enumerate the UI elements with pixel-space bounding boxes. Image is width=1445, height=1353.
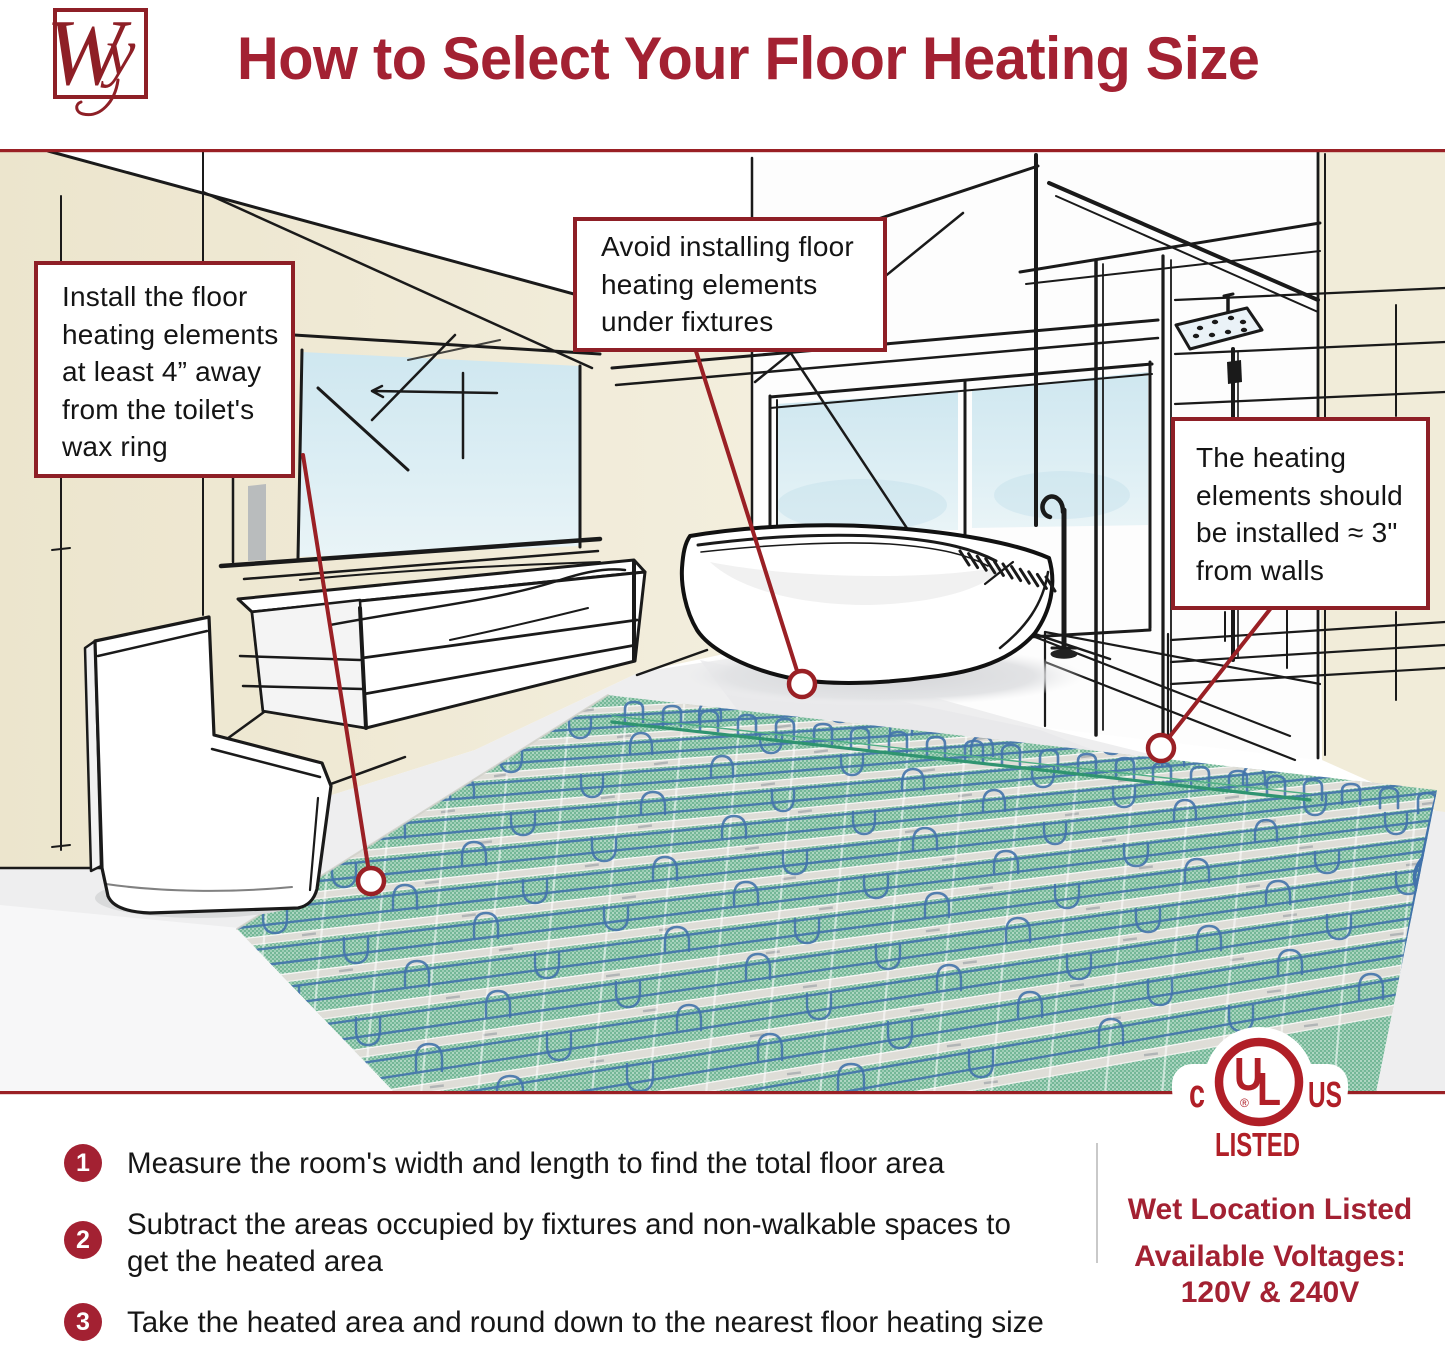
svg-text:c: c	[1189, 1072, 1205, 1116]
svg-text:LISTED: LISTED	[1215, 1126, 1300, 1163]
svg-text:US: US	[1308, 1074, 1342, 1115]
svg-text:®: ®	[1240, 1096, 1249, 1110]
svg-text:L: L	[1257, 1063, 1281, 1115]
